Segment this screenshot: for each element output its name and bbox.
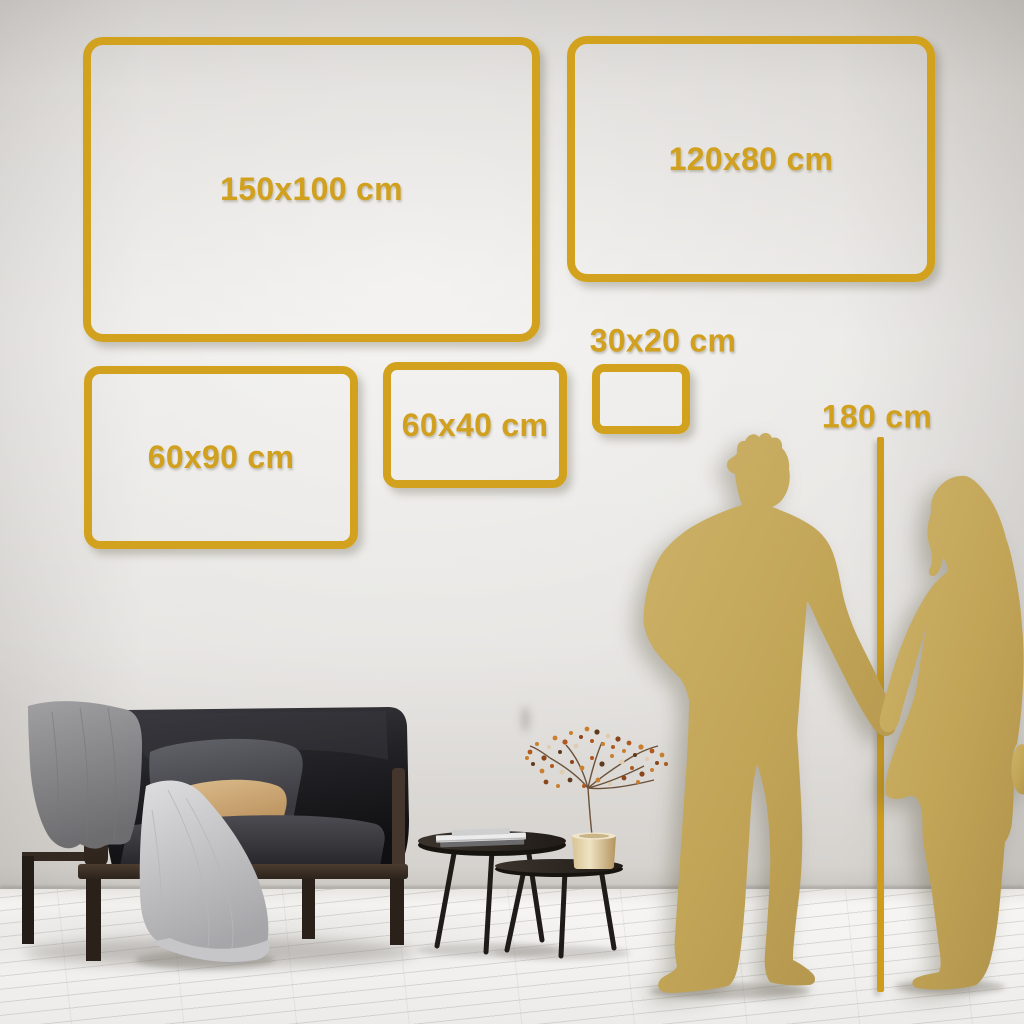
size-frame-30x20 (592, 364, 690, 434)
height-label-180cm: 180 cm (822, 399, 932, 436)
size-label-60x40: 60x40 cm (402, 407, 549, 444)
size-guide-scene: 150x100 cm 120x80 cm 60x90 cm 60x40 cm 3… (0, 0, 1024, 1024)
man-silhouette (644, 433, 896, 993)
size-label-150x100: 150x100 cm (220, 171, 403, 208)
size-frame-60x40: 60x40 cm (383, 362, 567, 488)
size-frame-120x80: 120x80 cm (567, 36, 935, 282)
size-label-30x20: 30x20 cm (590, 323, 737, 360)
size-frame-150x100: 150x100 cm (83, 37, 540, 342)
size-label-60x90: 60x90 cm (148, 439, 295, 476)
size-frame-60x90: 60x90 cm (84, 366, 358, 549)
size-label-120x80: 120x80 cm (669, 141, 834, 178)
woman-silhouette (880, 476, 1024, 990)
